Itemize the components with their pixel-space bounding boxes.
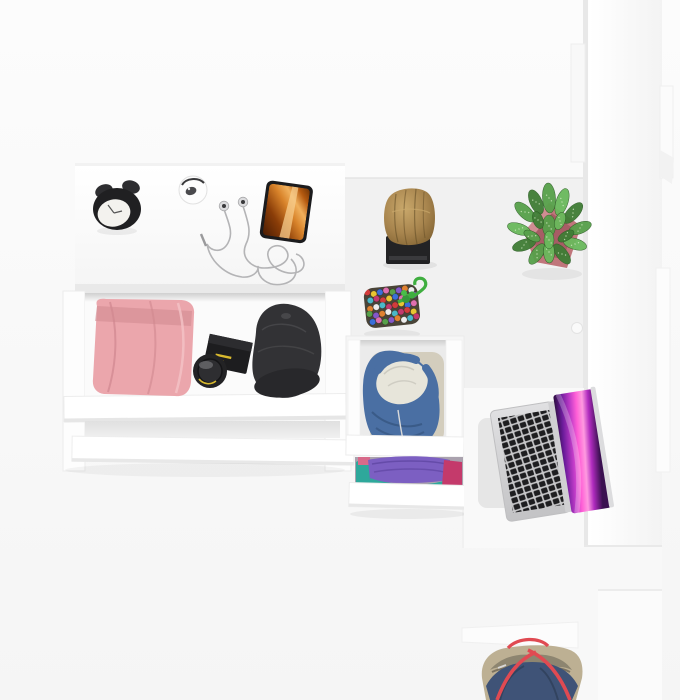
- bead: [407, 315, 414, 322]
- bead: [386, 295, 393, 302]
- bead: [375, 317, 382, 324]
- furniture-render: [0, 0, 680, 700]
- desk-shadow: [65, 463, 345, 477]
- bead: [404, 307, 411, 314]
- stool-log-top: [384, 188, 435, 245]
- scene-canvas: [0, 0, 680, 700]
- bead: [385, 309, 392, 316]
- clothes-drawer-front-1: [346, 435, 464, 457]
- bead: [392, 293, 399, 300]
- magenta-shirt: [442, 460, 462, 487]
- wardrobe-top-step: [571, 44, 585, 162]
- bead: [410, 300, 417, 307]
- camera-lens: [193, 354, 227, 388]
- pink-trousers: [93, 299, 194, 396]
- bead: [388, 317, 395, 324]
- wooden-stool: [383, 188, 437, 270]
- stool-shadow: [383, 260, 437, 270]
- clock-shadow: [97, 227, 137, 235]
- mini-clock: [179, 176, 207, 204]
- lens-glare: [199, 361, 213, 369]
- drawer-clothes: [346, 435, 466, 519]
- wardrobe-bottom-step-2: [598, 590, 662, 700]
- bead: [377, 289, 384, 296]
- bead: [373, 295, 380, 302]
- bead: [382, 318, 389, 325]
- bead: [413, 313, 420, 320]
- drawer-front-1: [64, 394, 346, 423]
- succulent-leaf: [544, 231, 554, 249]
- bead: [398, 308, 405, 315]
- clothes-drawer-front-2: [349, 482, 466, 509]
- bead: [373, 304, 380, 311]
- black-cap: [252, 304, 321, 402]
- wardrobe-knob: [572, 323, 583, 334]
- desk-front-edge: [75, 284, 345, 293]
- bead: [392, 302, 399, 309]
- plant-shadow: [522, 268, 582, 280]
- smartphone: [259, 180, 314, 244]
- denim-drawer-left-rail: [348, 340, 360, 446]
- cap-button: [281, 313, 291, 319]
- bead: [379, 302, 386, 309]
- drawer-front-2: [72, 436, 354, 465]
- bead: [367, 297, 374, 304]
- drawer-denim: [346, 336, 464, 448]
- bead: [394, 315, 401, 322]
- denim-drawer-right-rail: [446, 340, 462, 446]
- wardrobe-right-step-2: [656, 268, 670, 472]
- bead: [383, 287, 390, 294]
- drawer-gap: [85, 421, 340, 438]
- bead: [401, 316, 408, 323]
- bead: [366, 311, 373, 318]
- bead: [379, 310, 386, 317]
- clothes-drawer-shadow: [350, 509, 466, 519]
- bead: [369, 319, 376, 326]
